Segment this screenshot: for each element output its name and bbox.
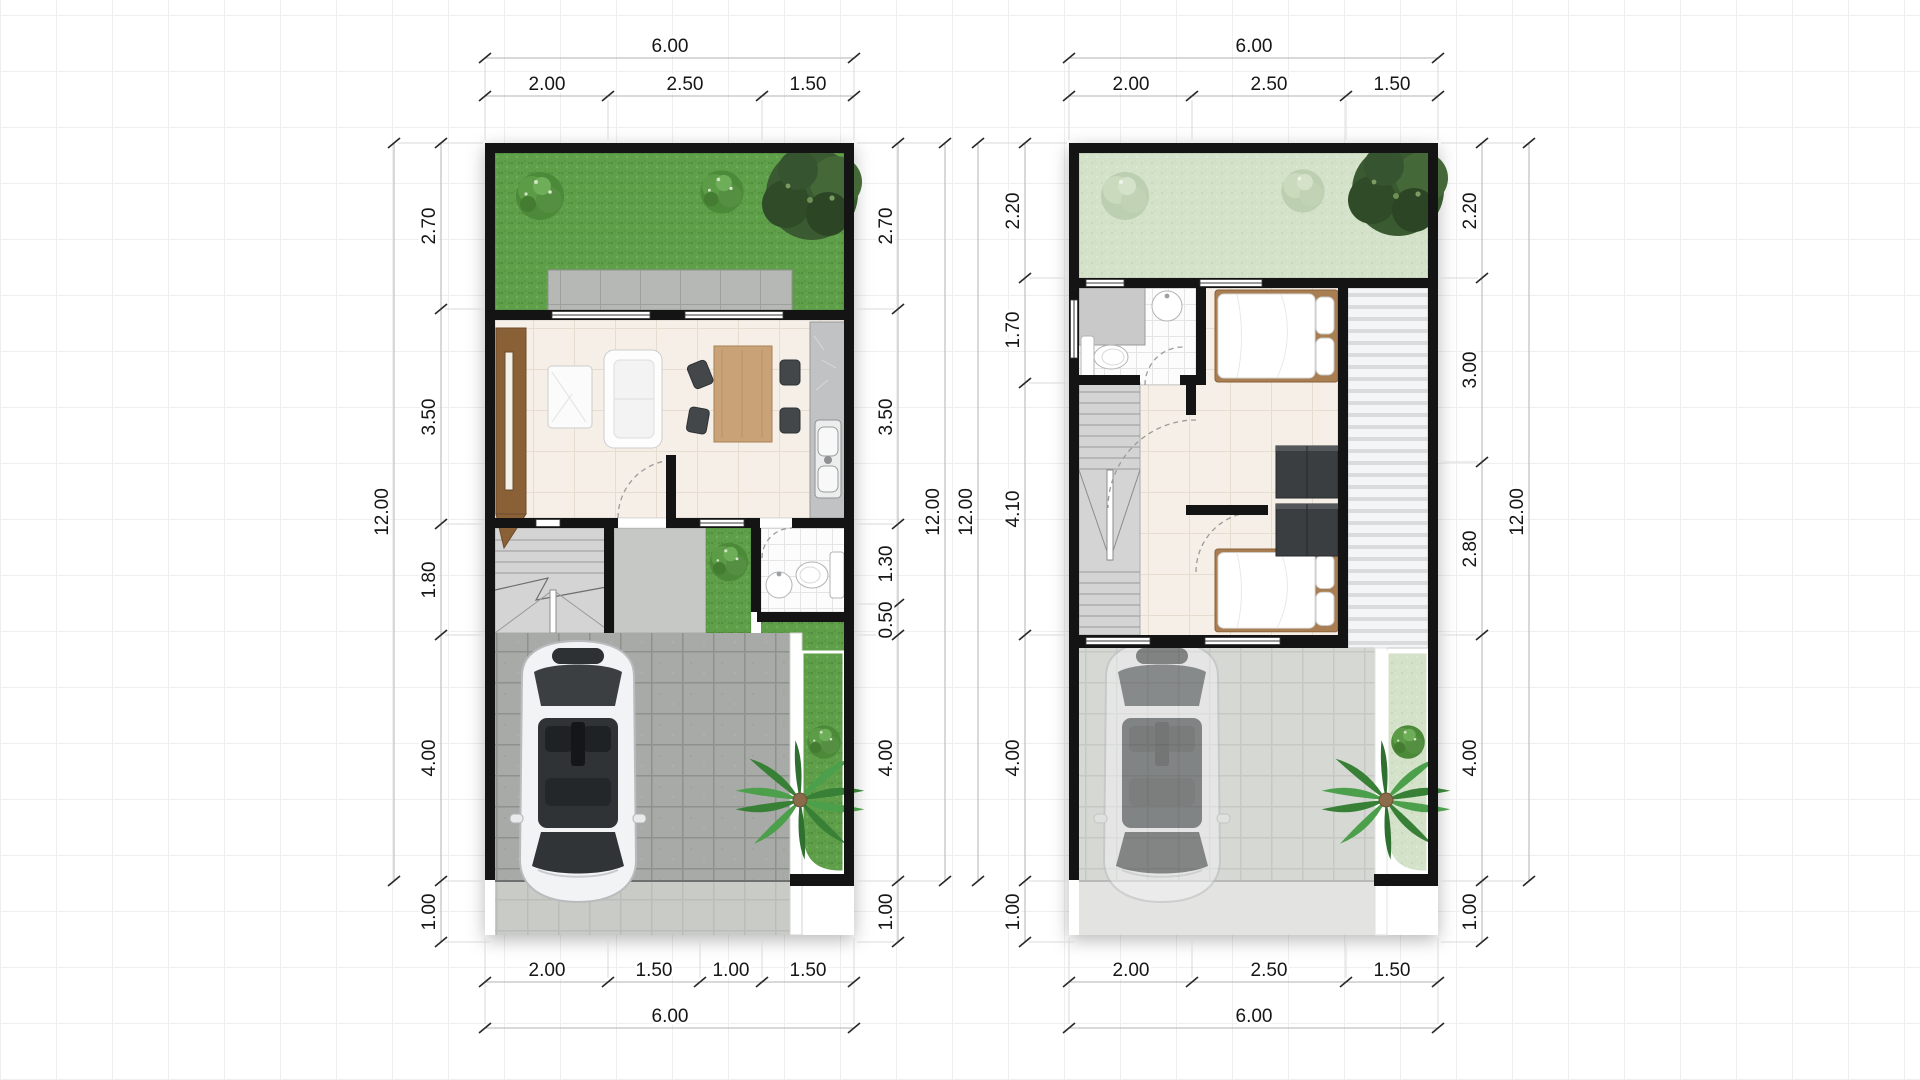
dim-label: 12.00 — [956, 488, 977, 536]
garden-bush-icon — [516, 172, 564, 220]
garden-bush-faded-icon — [1101, 172, 1149, 220]
ground-floor-plan — [485, 143, 864, 935]
dim-label: 1.70 — [1003, 312, 1024, 349]
wardrobe-icon — [1276, 446, 1338, 498]
dim-label: 1.50 — [1374, 960, 1411, 981]
dim-label: 2.50 — [1251, 74, 1288, 95]
dim-label: 1.00 — [876, 894, 897, 931]
dim-label: 1.80 — [419, 562, 440, 599]
dim-label: 3.50 — [876, 399, 897, 436]
dim-label: 2.50 — [667, 74, 704, 95]
dim-label: 1.00 — [1460, 894, 1481, 931]
sofa — [604, 350, 662, 448]
dim-label: 2.00 — [529, 74, 566, 95]
car-top-view-icon — [510, 641, 646, 902]
sink-faucet-icon — [777, 572, 782, 577]
garden-bush-icon — [700, 170, 743, 213]
dim-label: 4.00 — [1003, 740, 1024, 777]
dim-label: 3.00 — [1460, 352, 1481, 389]
floor-plan-sheet: 6.00 2.00 2.50 1.50 2.00 1.50 1.00 1.50 … — [0, 0, 1920, 1080]
dim-label: 4.00 — [419, 740, 440, 777]
dim-label: 4.10 — [1003, 491, 1024, 528]
sink-faucet-icon — [1165, 294, 1170, 299]
dim-label: 12.00 — [923, 488, 944, 536]
dim-label: 2.00 — [529, 960, 566, 981]
dim-label: 2.00 — [1113, 74, 1150, 95]
bed-icon — [1215, 290, 1338, 382]
roof-below-reference — [1348, 288, 1428, 648]
dim-label: 2.70 — [419, 208, 440, 245]
wardrobe-icon — [1276, 504, 1338, 556]
dim-label: 2.20 — [1003, 193, 1024, 230]
terrace — [548, 270, 792, 310]
carport-bush-icon — [1391, 725, 1425, 759]
kitchen-faucet-icon — [824, 456, 832, 464]
armchair — [548, 366, 592, 428]
dim-label: 2.80 — [1460, 531, 1481, 568]
dim-label: 1.00 — [419, 894, 440, 931]
dim-label: 1.50 — [1374, 74, 1411, 95]
dim-label: 6.00 — [1236, 36, 1273, 57]
hallway — [614, 528, 706, 633]
dim-label: 1.50 — [790, 960, 827, 981]
kitchen-counter — [810, 322, 846, 518]
dim-label: 12.00 — [372, 488, 393, 536]
garden-bush-faded-icon — [1281, 169, 1324, 212]
dim-label: 2.70 — [876, 208, 897, 245]
dim-label: 4.00 — [876, 740, 897, 777]
dim-label: 1.00 — [1003, 894, 1024, 931]
wardrobe — [496, 328, 526, 548]
dim-label: 4.00 — [1460, 740, 1481, 777]
dim-label: 2.50 — [1251, 960, 1288, 981]
carport-bush-icon — [807, 725, 841, 759]
planter-bush-icon — [710, 543, 748, 581]
dim-label: 0.50 — [876, 602, 897, 639]
dim-label: 12.00 — [1507, 488, 1528, 536]
upper-floor-plan — [1069, 143, 1450, 935]
bed-icon — [1215, 549, 1338, 632]
dim-label: 6.00 — [1236, 1006, 1273, 1027]
dim-label: 3.50 — [419, 399, 440, 436]
dim-label: 1.30 — [876, 546, 897, 583]
floor-plan-drawing: 6.00 2.00 2.50 1.50 2.00 1.50 1.00 1.50 … — [0, 0, 1920, 1080]
dim-label: 6.00 — [652, 36, 689, 57]
dim-label: 1.00 — [713, 960, 750, 981]
dim-label: 1.50 — [790, 74, 827, 95]
dim-label: 6.00 — [652, 1006, 689, 1027]
dim-label: 2.20 — [1460, 193, 1481, 230]
dim-label: 2.00 — [1113, 960, 1150, 981]
dim-label: 1.50 — [636, 960, 673, 981]
